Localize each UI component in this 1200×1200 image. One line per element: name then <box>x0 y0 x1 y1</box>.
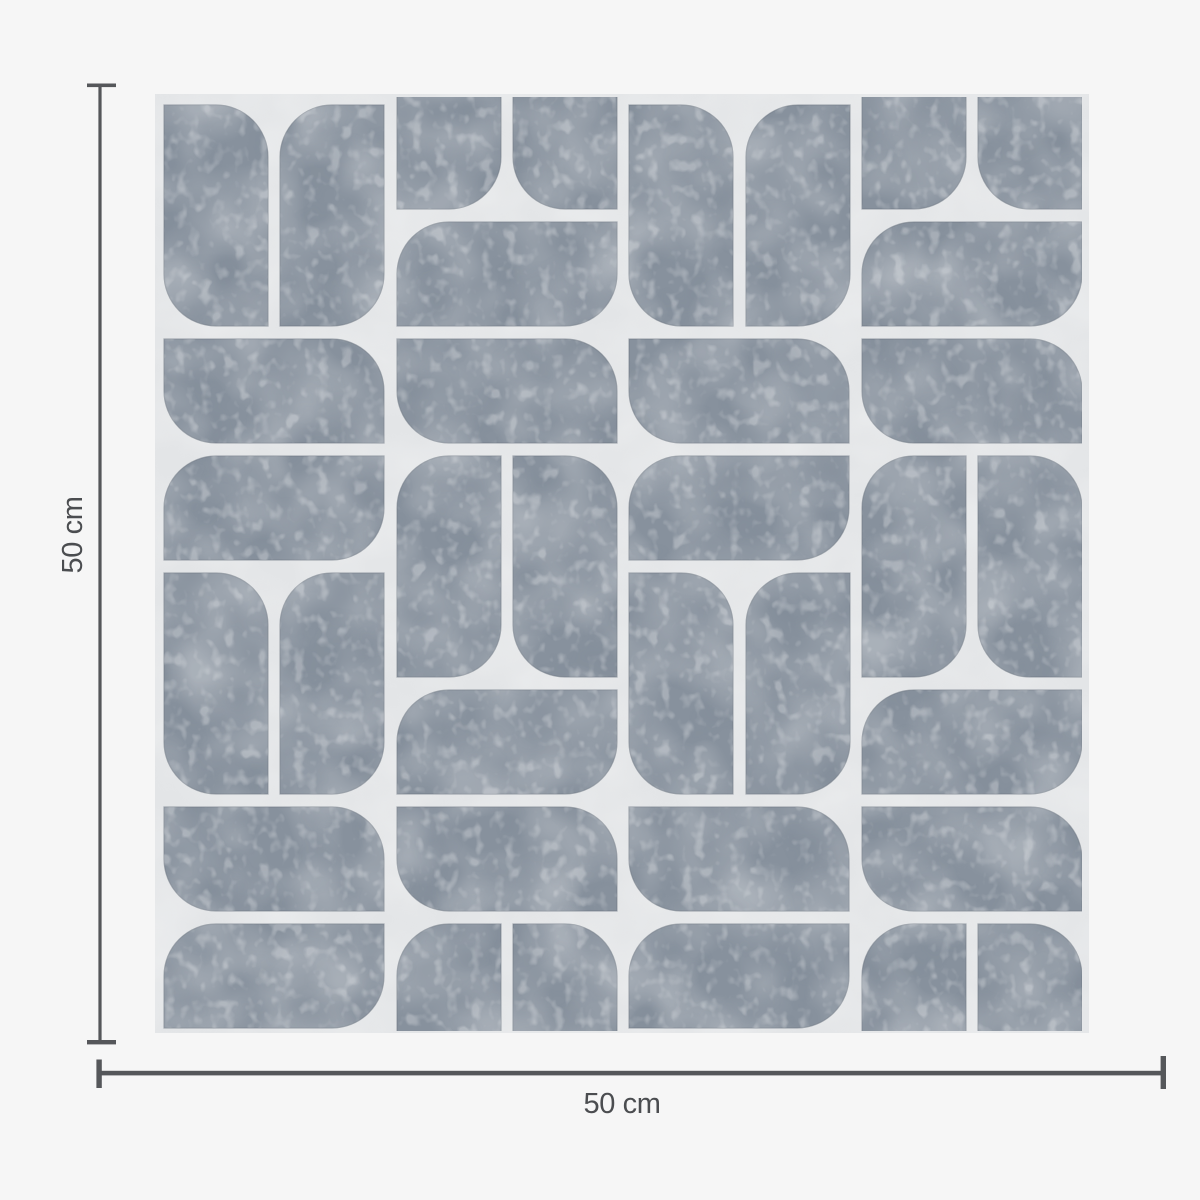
svg-text:50 cm: 50 cm <box>57 497 89 574</box>
svg-text:50 cm: 50 cm <box>584 1088 661 1120</box>
